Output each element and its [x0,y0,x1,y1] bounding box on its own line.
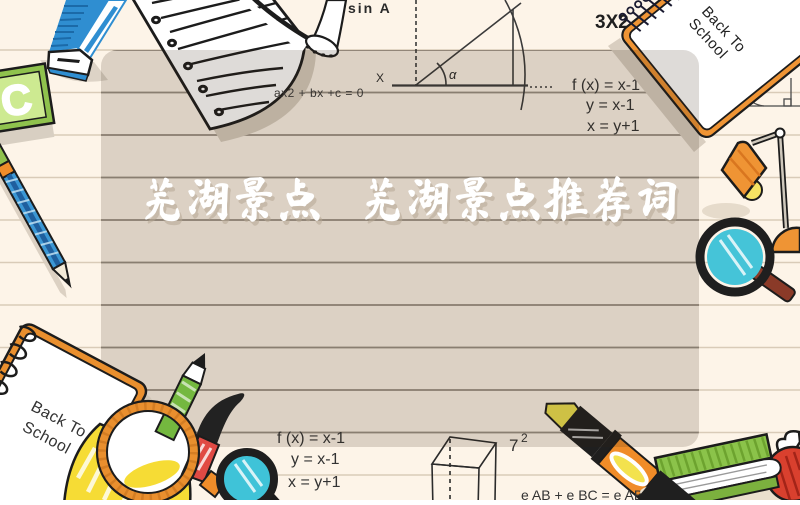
svg-text:x = y+1: x = y+1 [288,474,341,491]
svg-text:y = x-1: y = x-1 [291,451,340,468]
svg-text:sin A: sin A [348,0,392,16]
svg-text:e AB + e BC = e AB: e AB + e BC = e AB [521,487,643,500]
